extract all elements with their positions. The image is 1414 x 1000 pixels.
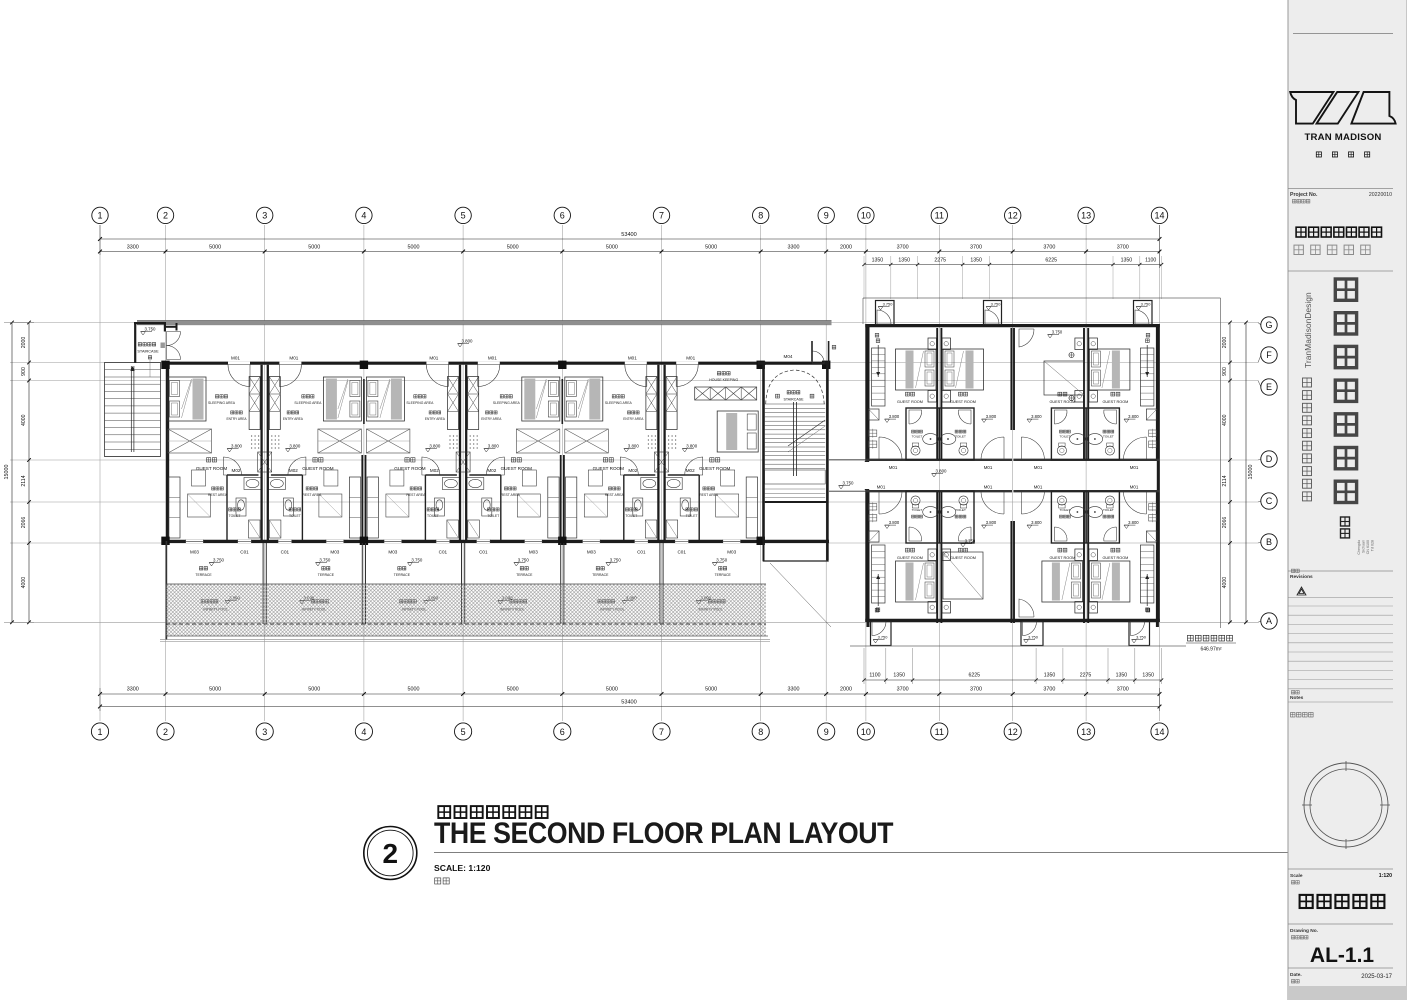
svg-text:3.750: 3.750 (319, 557, 331, 562)
svg-text:2114: 2114 (1222, 475, 1228, 486)
svg-text:M04: M04 (784, 354, 793, 359)
svg-text:3.800: 3.800 (889, 414, 900, 419)
svg-text:5000: 5000 (606, 245, 618, 251)
svg-text:M01: M01 (889, 465, 898, 470)
svg-text:M01: M01 (1034, 485, 1043, 490)
svg-text:SLEEPING AREA: SLEEPING AREA (294, 401, 322, 405)
svg-text:ENTRY AREA: ENTRY AREA (226, 417, 247, 421)
svg-text:REST AREA: REST AREA (699, 493, 719, 497)
svg-text:C: C (1266, 496, 1273, 506)
svg-text:2: 2 (383, 838, 399, 869)
svg-text:5000: 5000 (408, 245, 420, 251)
svg-text:3700: 3700 (1117, 245, 1129, 251)
svg-text:ENTRY AREA: ENTRY AREA (623, 417, 644, 421)
svg-text:2000: 2000 (1222, 337, 1228, 349)
svg-text:M01: M01 (488, 356, 497, 361)
svg-text:GUEST ROOM: GUEST ROOM (897, 556, 923, 560)
svg-text:3.750: 3.750 (716, 557, 728, 562)
svg-text:7: 7 (659, 727, 664, 737)
svg-text:M03: M03 (587, 550, 596, 555)
svg-text:M02: M02 (430, 468, 439, 473)
svg-text:M01: M01 (1130, 485, 1139, 490)
svg-text:2: 2 (163, 727, 168, 737)
svg-text:AL-1.1: AL-1.1 (1310, 944, 1375, 967)
svg-text:TERRACE: TERRACE (318, 573, 335, 577)
svg-text:15000: 15000 (4, 465, 10, 480)
svg-text:3.750: 3.750 (843, 480, 855, 485)
svg-text:1350: 1350 (898, 258, 910, 264)
svg-text:TERRACE: TERRACE (592, 573, 609, 577)
svg-text:Scale: Scale (1290, 873, 1303, 879)
svg-text:3.800: 3.800 (936, 468, 948, 473)
svg-text:3.800: 3.800 (429, 443, 441, 448)
svg-text:M01: M01 (1130, 465, 1139, 470)
svg-text:TERRACE: TERRACE (195, 573, 212, 577)
svg-text:3.800: 3.800 (462, 338, 474, 343)
svg-text:C01: C01 (677, 550, 686, 555)
svg-text:12: 12 (1008, 727, 1018, 737)
svg-text:TOILET: TOILET (912, 508, 923, 512)
svg-text:Project No.: Project No. (1290, 192, 1318, 198)
svg-text:M02: M02 (232, 468, 241, 473)
svg-text:5000: 5000 (308, 245, 320, 251)
svg-text:6: 6 (560, 211, 565, 221)
svg-text:Td 028: Td 028 (1371, 540, 1375, 551)
svg-text:2000: 2000 (840, 687, 852, 693)
svg-text:11: 11 (935, 211, 944, 221)
svg-text:TERRACE: TERRACE (516, 573, 533, 577)
svg-text:13: 13 (1081, 727, 1091, 737)
svg-text:M03: M03 (388, 550, 397, 555)
svg-text:3.750: 3.750 (1052, 329, 1063, 334)
svg-text:GUEST ROOM: GUEST ROOM (1102, 556, 1128, 560)
svg-text:TOILET: TOILET (1060, 508, 1071, 512)
svg-text:Drawing No.: Drawing No. (1290, 928, 1318, 934)
svg-text:6225: 6225 (1045, 258, 1057, 264)
svg-text:6: 6 (560, 727, 565, 737)
svg-text:B: B (1266, 537, 1272, 547)
svg-text:TOILET: TOILET (955, 434, 966, 438)
svg-text:2: 2 (163, 211, 168, 221)
svg-text:3.750: 3.750 (1141, 301, 1152, 306)
svg-text:G: G (1265, 320, 1272, 330)
svg-text:4000: 4000 (21, 414, 27, 426)
svg-text:E: E (1266, 382, 1272, 392)
svg-text:3300: 3300 (788, 245, 800, 251)
svg-text:4: 4 (361, 211, 366, 221)
svg-text:M03: M03 (529, 550, 538, 555)
svg-text:M01: M01 (686, 356, 695, 361)
svg-text:TOILET: TOILET (686, 514, 698, 518)
svg-text:1: 1 (97, 211, 102, 221)
svg-text:3.800: 3.800 (986, 414, 997, 419)
svg-text:1: 1 (97, 727, 102, 737)
svg-text:TOILET: TOILET (1060, 434, 1071, 438)
svg-text:C01: C01 (439, 550, 448, 555)
svg-text:SLEEPING AREA: SLEEPING AREA (605, 401, 633, 405)
svg-text:REST AREA: REST AREA (406, 493, 426, 497)
svg-text:9: 9 (824, 727, 829, 737)
svg-text:REST AREA: REST AREA (501, 493, 521, 497)
svg-text:C01: C01 (281, 550, 290, 555)
svg-text:5000: 5000 (507, 687, 519, 693)
svg-text:TOILET: TOILET (427, 514, 439, 518)
svg-text:1100: 1100 (1145, 258, 1156, 264)
svg-text:5000: 5000 (408, 687, 420, 693)
svg-text:TRAN MADISON: TRAN MADISON (1304, 132, 1381, 143)
svg-text:M01: M01 (877, 485, 886, 490)
svg-text:5: 5 (461, 727, 466, 737)
svg-text:3.750: 3.750 (965, 538, 976, 543)
svg-text:1350: 1350 (1142, 673, 1154, 679)
svg-text:3.800: 3.800 (889, 520, 900, 525)
svg-text:TranMadisonDesign: TranMadisonDesign (1303, 292, 1313, 368)
svg-text:1350: 1350 (893, 673, 905, 679)
svg-text:7: 7 (659, 211, 664, 221)
svg-text:Chengdu: Chengdu (1357, 540, 1361, 555)
svg-text:3700: 3700 (970, 245, 982, 251)
svg-text:THE SECOND FLOOR PLAN LAYOUT: THE SECOND FLOOR PLAN LAYOUT (434, 817, 893, 850)
svg-text:53400: 53400 (621, 232, 637, 238)
svg-text:3300: 3300 (127, 687, 139, 693)
svg-text:GUEST ROOM: GUEST ROOM (1102, 400, 1128, 404)
svg-text:TOILET: TOILET (289, 514, 301, 518)
svg-text:TOILET: TOILET (487, 514, 499, 518)
svg-text:Date.: Date. (1290, 972, 1302, 978)
svg-text:900: 900 (1222, 367, 1228, 376)
svg-text:M03: M03 (330, 550, 339, 555)
svg-text:STAIRCASE: STAIRCASE (137, 350, 159, 354)
svg-text:Sichuan: Sichuan (1362, 540, 1366, 553)
svg-text:GUEST ROOM: GUEST ROOM (950, 556, 976, 560)
svg-text:1350: 1350 (872, 258, 884, 264)
svg-text:Notes: Notes (1290, 695, 1304, 701)
svg-text:4000: 4000 (1222, 414, 1228, 426)
svg-text:TOILET: TOILET (229, 514, 241, 518)
svg-text:TERRACE: TERRACE (715, 573, 732, 577)
svg-text:3.800: 3.800 (1031, 414, 1042, 419)
svg-text:CN 6100: CN 6100 (1366, 540, 1370, 554)
svg-text:2000: 2000 (21, 337, 27, 349)
svg-text:3.750: 3.750 (411, 557, 423, 562)
svg-text:A: A (1266, 616, 1272, 626)
svg-text:5000: 5000 (209, 245, 221, 251)
svg-text:6225: 6225 (969, 673, 981, 679)
svg-text:12: 12 (1008, 211, 1018, 221)
svg-text:REST AREA: REST AREA (208, 493, 228, 497)
svg-text:TOILET: TOILET (1103, 434, 1114, 438)
svg-text:REST AREA: REST AREA (605, 493, 625, 497)
svg-text:5000: 5000 (705, 245, 717, 251)
svg-text:C01: C01 (637, 550, 646, 555)
svg-text:2275: 2275 (1080, 673, 1092, 679)
svg-text:3700: 3700 (897, 687, 909, 693)
svg-text:3: 3 (262, 211, 267, 221)
svg-text:3.750: 3.750 (610, 557, 622, 562)
svg-text:14: 14 (1154, 211, 1164, 221)
svg-text:5000: 5000 (308, 687, 320, 693)
svg-text:3.750: 3.750 (1136, 634, 1147, 639)
svg-text:M01: M01 (1034, 465, 1043, 470)
svg-text:SLEEPING AREA: SLEEPING AREA (493, 401, 521, 405)
svg-text:3.750: 3.750 (1028, 634, 1039, 639)
svg-text:3300: 3300 (788, 687, 800, 693)
svg-text:M01: M01 (429, 356, 438, 361)
svg-text:53400: 53400 (621, 700, 637, 706)
svg-text:3.800: 3.800 (231, 443, 243, 448)
svg-text:1350: 1350 (1116, 673, 1128, 679)
svg-text:1350: 1350 (970, 258, 982, 264)
svg-text:ENTRY AREA: ENTRY AREA (283, 417, 304, 421)
svg-text:3.750: 3.750 (991, 301, 1002, 306)
svg-text:F: F (1266, 350, 1272, 360)
svg-text:2066: 2066 (21, 517, 27, 529)
svg-text:M02: M02 (686, 468, 695, 473)
svg-text:2000: 2000 (840, 245, 852, 251)
svg-text:4000: 4000 (1222, 577, 1228, 589)
svg-text:8: 8 (758, 727, 763, 737)
svg-text:3: 3 (262, 727, 267, 737)
svg-text:1350: 1350 (1121, 258, 1133, 264)
svg-text:M03: M03 (190, 550, 199, 555)
svg-text:1100: 1100 (869, 673, 880, 679)
svg-text:10: 10 (861, 211, 871, 221)
svg-text:Revisions: Revisions (1290, 574, 1313, 580)
svg-text:M02: M02 (628, 468, 637, 473)
svg-text:SLEEPING AREA: SLEEPING AREA (406, 401, 434, 405)
svg-text:8: 8 (758, 211, 763, 221)
svg-text:3700: 3700 (970, 687, 982, 693)
svg-text:TERRACE: TERRACE (394, 573, 411, 577)
svg-text:2275: 2275 (934, 258, 946, 264)
svg-text:4000: 4000 (21, 577, 27, 589)
svg-text:3.750: 3.750 (878, 634, 889, 639)
svg-text:5000: 5000 (705, 687, 717, 693)
svg-text:M01: M01 (628, 356, 637, 361)
svg-text:14: 14 (1154, 727, 1164, 737)
svg-text:3700: 3700 (1117, 687, 1129, 693)
svg-text:10: 10 (861, 727, 871, 737)
svg-text:3700: 3700 (1043, 687, 1055, 693)
svg-text:TOILET: TOILET (1103, 508, 1114, 512)
svg-text:1350: 1350 (1044, 673, 1056, 679)
svg-text:3.800: 3.800 (628, 443, 640, 448)
svg-text:M01: M01 (984, 485, 993, 490)
svg-text:M02: M02 (289, 468, 298, 473)
svg-text:4: 4 (361, 727, 366, 737)
svg-text:D: D (1266, 454, 1273, 464)
svg-text:M01: M01 (289, 356, 298, 361)
svg-text:ENTRY AREA: ENTRY AREA (481, 417, 502, 421)
svg-text:ENTRY AREA: ENTRY AREA (425, 417, 446, 421)
svg-text:3.750: 3.750 (518, 557, 530, 562)
svg-text:900: 900 (21, 367, 27, 376)
svg-text:GUEST ROOM: GUEST ROOM (897, 400, 923, 404)
svg-text:3700: 3700 (1043, 245, 1055, 251)
svg-text:3.750: 3.750 (213, 557, 225, 562)
svg-text:M02: M02 (487, 468, 496, 473)
svg-text:GUEST ROOM: GUEST ROOM (1049, 556, 1075, 560)
svg-text:M03: M03 (727, 550, 736, 555)
svg-text:11: 11 (935, 727, 944, 737)
svg-text:M01: M01 (984, 465, 993, 470)
svg-text:3.800: 3.800 (986, 520, 997, 525)
svg-text:3.800: 3.800 (1128, 414, 1139, 419)
svg-text:STAIRCASE: STAIRCASE (783, 398, 804, 402)
svg-text:3.800: 3.800 (1128, 520, 1139, 525)
svg-text:1:120: 1:120 (1379, 873, 1392, 879)
svg-text:646.97m²: 646.97m² (1200, 647, 1221, 653)
svg-text:13: 13 (1081, 211, 1091, 221)
svg-text:5: 5 (461, 211, 466, 221)
svg-text:3.800: 3.800 (1031, 520, 1042, 525)
svg-text:2025-03-17: 2025-03-17 (1361, 974, 1392, 980)
svg-text:TOILET: TOILET (912, 434, 923, 438)
svg-text:M01: M01 (231, 356, 240, 361)
svg-text:2114: 2114 (21, 475, 27, 486)
svg-text:3.750: 3.750 (145, 326, 157, 331)
svg-text:HOUSE KEEPING: HOUSE KEEPING (709, 378, 738, 382)
svg-text:3.800: 3.800 (488, 443, 500, 448)
svg-text:REST AREA: REST AREA (302, 493, 322, 497)
svg-text:2066: 2066 (1222, 517, 1228, 529)
svg-text:5000: 5000 (209, 687, 221, 693)
svg-text:15000: 15000 (1248, 465, 1254, 480)
svg-text:TOILET: TOILET (955, 508, 966, 512)
svg-text:20220010: 20220010 (1369, 192, 1392, 198)
svg-text:3.800: 3.800 (289, 443, 301, 448)
svg-text:C01: C01 (240, 550, 249, 555)
svg-text:C01: C01 (479, 550, 488, 555)
svg-text:5000: 5000 (606, 687, 618, 693)
svg-text:5000: 5000 (507, 245, 519, 251)
svg-text:SCALE: 1:120: SCALE: 1:120 (434, 863, 491, 873)
svg-text:TOILET: TOILET (625, 514, 637, 518)
svg-text:3700: 3700 (897, 245, 909, 251)
svg-text:SLEEPING AREA: SLEEPING AREA (208, 401, 236, 405)
svg-text:3.800: 3.800 (686, 443, 698, 448)
svg-text:3.750: 3.750 (883, 301, 894, 306)
svg-text:3300: 3300 (127, 245, 139, 251)
svg-text:GUEST ROOM: GUEST ROOM (950, 400, 976, 404)
svg-text:9: 9 (824, 211, 829, 221)
